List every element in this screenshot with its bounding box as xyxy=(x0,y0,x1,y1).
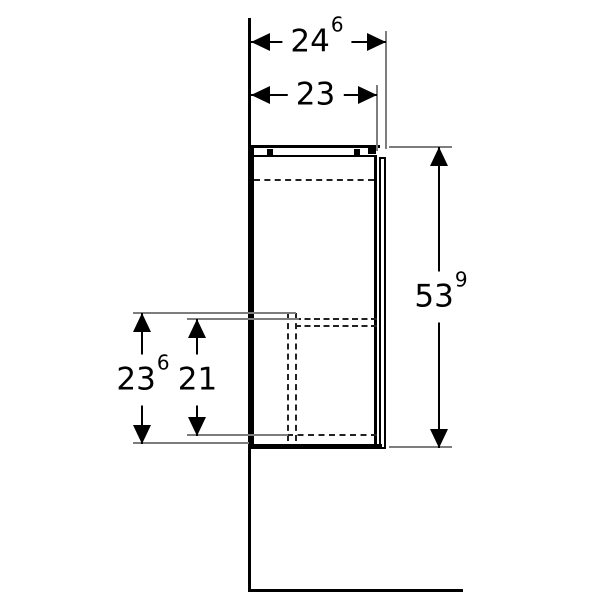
dim-value: 24 xyxy=(290,24,329,60)
arrowhead-right xyxy=(358,86,377,104)
drawer-hidden-line-top-outer xyxy=(295,318,377,320)
dim-value: 23 xyxy=(116,362,155,398)
arrowhead-up xyxy=(188,319,206,338)
mounting-bracket-right xyxy=(354,149,360,155)
drawer-hidden-line-top-inner xyxy=(295,325,377,327)
arrowhead-right xyxy=(367,33,386,51)
floor-line xyxy=(248,589,463,592)
drawer-hidden-line-back-inner xyxy=(295,313,297,441)
cabinet-top-edge xyxy=(251,145,380,148)
drawer-hidden-line-bottom xyxy=(287,434,377,436)
cabinet-bottom-panel xyxy=(251,444,382,449)
top-corner-fitting xyxy=(368,146,376,154)
arrowhead-left xyxy=(251,33,270,51)
shelf-hidden-line xyxy=(254,179,374,181)
dim-label-depth-body: 23 xyxy=(288,80,344,111)
dim-sup: 6 xyxy=(157,350,170,374)
dim-sup: 9 xyxy=(455,267,468,291)
dim-label-depth-total: 246 xyxy=(282,27,351,58)
cabinet-front-frame-line xyxy=(374,155,377,446)
dim-sup: 6 xyxy=(331,12,344,36)
cabinet-back-line xyxy=(251,145,254,449)
ext-line-front-lower-top xyxy=(133,312,296,314)
dim-value: 53 xyxy=(414,279,453,315)
arrowhead-up xyxy=(430,147,448,166)
drawer-hidden-line-back-outer xyxy=(287,313,289,441)
door-panel xyxy=(379,157,386,449)
dim-label-interior-lower: 21 xyxy=(174,355,222,406)
dim-value: 23 xyxy=(296,77,335,113)
dim-label-front-lower: 236 xyxy=(112,355,173,406)
dim-label-height: 539 xyxy=(410,272,471,323)
cabinet-top-panel-bottom xyxy=(251,155,377,157)
arrowhead-up xyxy=(133,313,151,332)
arrowhead-down xyxy=(430,429,448,448)
technical-drawing-canvas: 246 23 539 236 21 xyxy=(0,0,600,600)
mounting-bracket-left xyxy=(267,149,273,155)
dim-value: 21 xyxy=(178,362,217,398)
arrowhead-left xyxy=(251,86,270,104)
arrowhead-down xyxy=(133,425,151,444)
arrowhead-down xyxy=(188,417,206,436)
